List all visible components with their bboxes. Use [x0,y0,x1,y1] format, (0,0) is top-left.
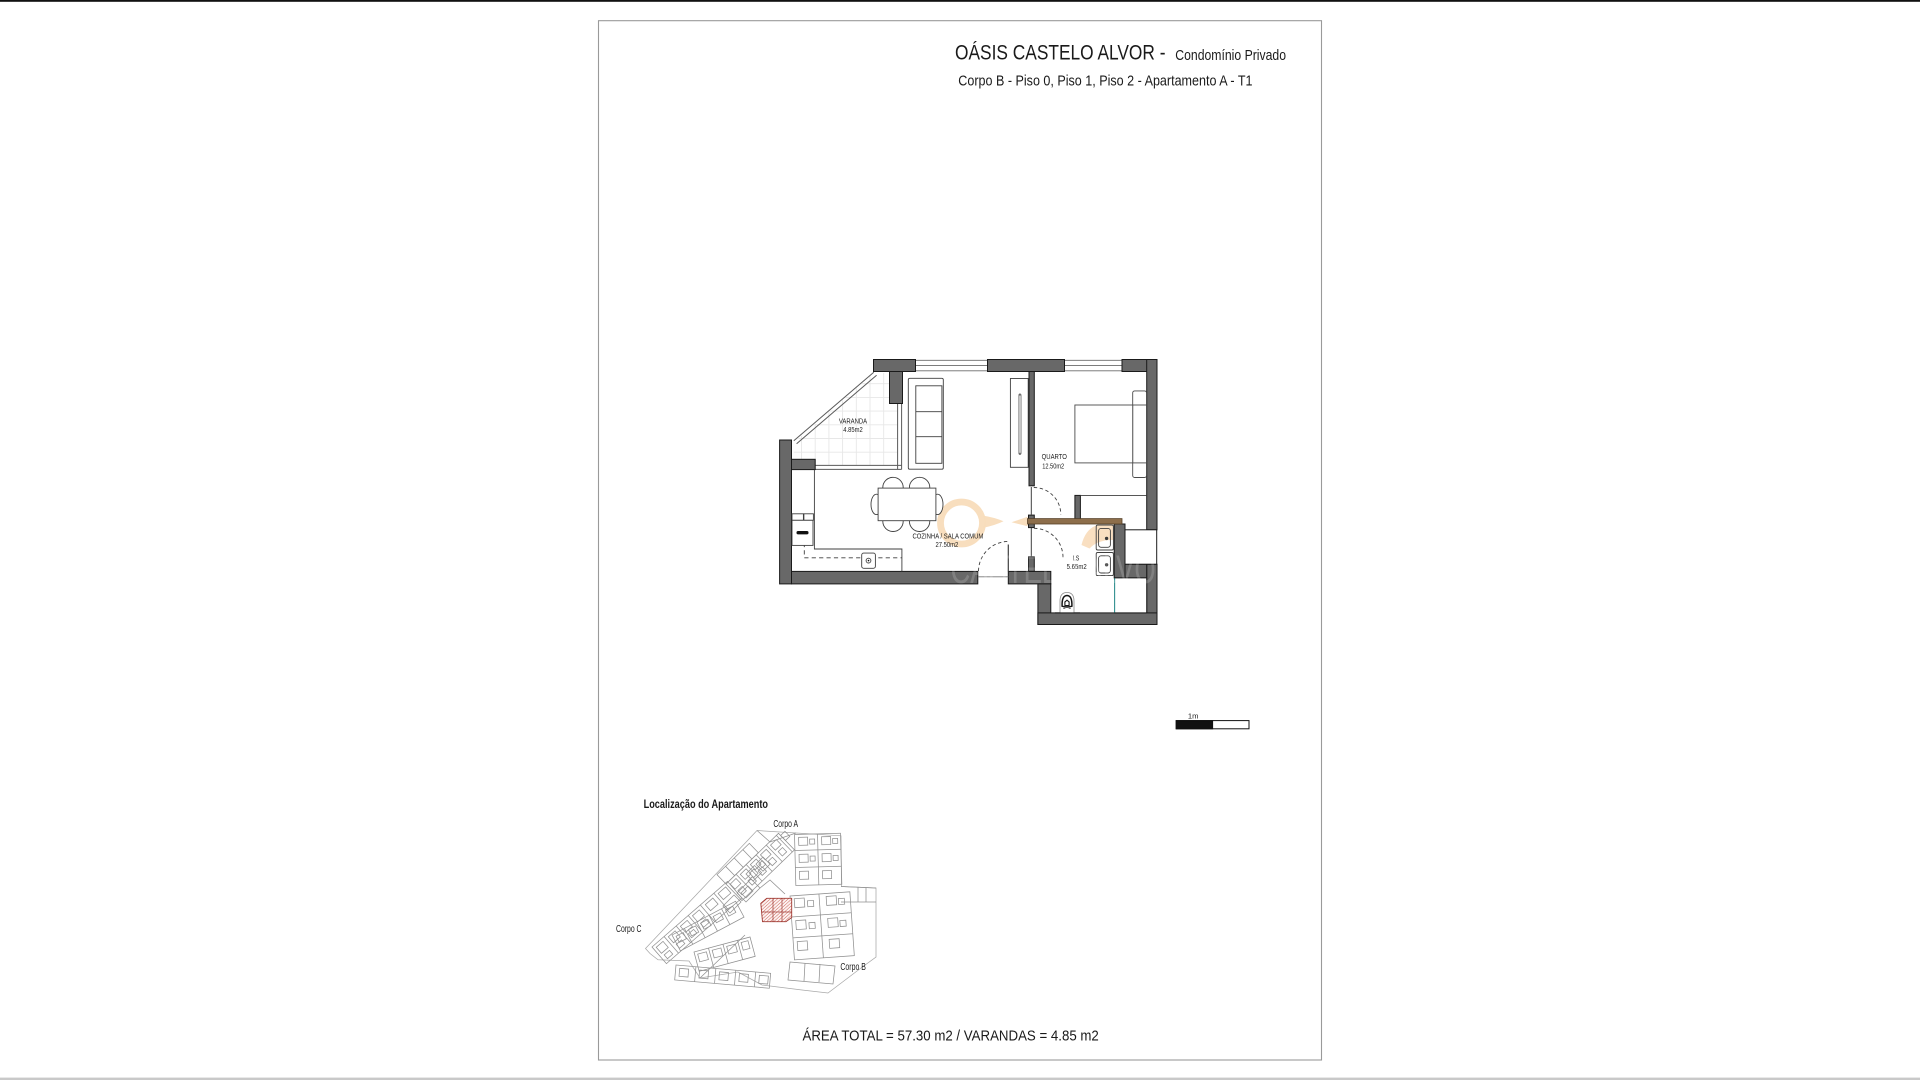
svg-text:Localização do Apartamento: Localização do Apartamento [644,797,768,811]
svg-text:Corpo C: Corpo C [616,924,642,935]
svg-text:Corpo A: Corpo A [773,819,798,830]
svg-text:ÁREA TOTAL = 57.30 m2 / VA: ÁREA TOTAL = 57.30 m2 / VARANDAS = 4.85 … [803,1027,1099,1044]
svg-text:QUARTO: QUARTO [1042,452,1067,461]
svg-text:4.85m2: 4.85m2 [843,425,863,434]
svg-text:Condomínio Privado: Condomínio Privado [1175,47,1286,64]
svg-text:OÁSIS CASTELO ALVOR -: OÁSIS CASTELO ALVOR - [955,42,1166,65]
svg-text:CASTELO ALVOR: CASTELO ALVOR [951,548,1176,592]
svg-text:Corpo B: Corpo B [840,962,866,973]
svg-text:1m: 1m [1188,711,1199,720]
svg-text:12.50m2: 12.50m2 [1042,462,1064,471]
svg-text:Corpo B - Piso 0, Piso 1, Piso: Corpo B - Piso 0, Piso 1, Piso 2 - Apart… [958,73,1252,90]
